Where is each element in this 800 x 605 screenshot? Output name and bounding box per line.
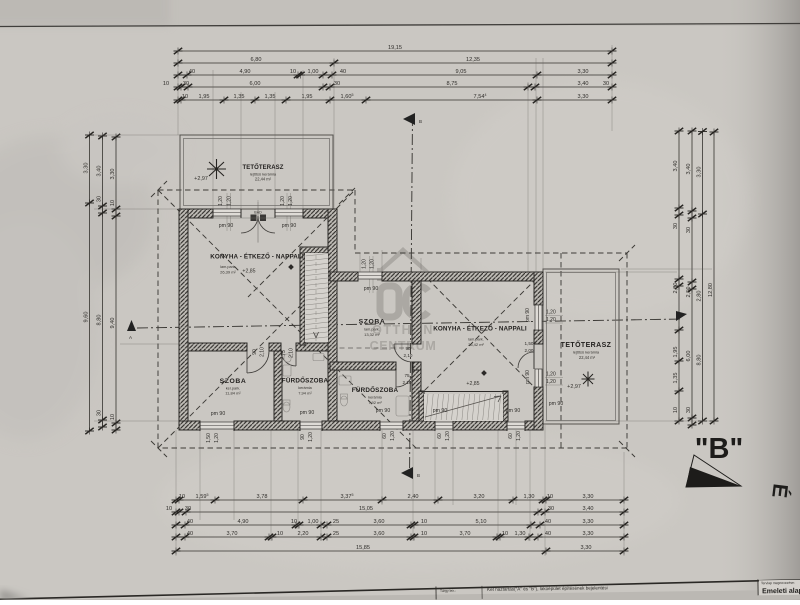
svg-text:60: 60 <box>382 433 388 439</box>
svg-text:+2,97: +2,97 <box>567 384 581 390</box>
svg-text:pm 90: pm 90 <box>219 223 234 229</box>
svg-text:40: 40 <box>187 531 193 537</box>
svg-text:26,42 m²: 26,42 m² <box>468 342 484 347</box>
svg-text:40: 40 <box>340 69 346 75</box>
svg-text:pm 90: pm 90 <box>433 408 448 414</box>
svg-text:10: 10 <box>182 94 188 100</box>
svg-text:SZOBA: SZOBA <box>359 319 386 326</box>
svg-text:40: 40 <box>189 69 195 75</box>
svg-text:FÜRDŐSZOBA: FÜRDŐSZOBA <box>352 385 399 394</box>
svg-text:22,44 m²: 22,44 m² <box>255 177 272 182</box>
svg-text:2,00: 2,00 <box>525 348 534 353</box>
svg-text:1,35: 1,35 <box>234 94 245 100</box>
svg-text:TETŐTERASZ: TETŐTERASZ <box>243 164 284 171</box>
svg-text:30: 30 <box>183 81 189 87</box>
svg-text:90: 90 <box>405 346 411 351</box>
svg-text:1,20: 1,20 <box>516 431 522 441</box>
svg-text:3,30: 3,30 <box>84 163 90 174</box>
svg-text:1,30: 1,30 <box>524 494 535 500</box>
svg-text:BÁD: BÁD <box>254 211 262 215</box>
svg-text:7,94 m²: 7,94 m² <box>298 391 312 396</box>
svg-text:2,80: 2,80 <box>673 283 679 294</box>
svg-text:26,39 m²: 26,39 m² <box>220 270 236 275</box>
svg-text:15,05: 15,05 <box>359 506 373 512</box>
svg-text:2,10: 2,10 <box>403 380 412 385</box>
svg-text:1,00: 1,00 <box>308 519 319 525</box>
svg-text:15,85: 15,85 <box>356 545 370 551</box>
svg-text:pm 90: pm 90 <box>525 370 531 384</box>
svg-text:+2,97: +2,97 <box>194 176 208 182</box>
svg-text:2,10: 2,10 <box>260 347 266 357</box>
svg-text:30: 30 <box>185 506 191 512</box>
svg-text:2,80: 2,80 <box>697 291 703 302</box>
svg-text:10: 10 <box>179 494 185 500</box>
svg-text:pm 90: pm 90 <box>364 286 379 292</box>
svg-text:8,80: 8,80 <box>697 355 703 366</box>
svg-text:90: 90 <box>252 349 258 355</box>
svg-text:pm 90: pm 90 <box>525 308 531 322</box>
svg-text:9,60: 9,60 <box>84 312 90 323</box>
svg-text:10: 10 <box>673 407 679 413</box>
svg-text:13,32 m²: 13,32 m² <box>364 332 380 337</box>
svg-text:8,75: 8,75 <box>447 81 458 87</box>
svg-text:3,70: 3,70 <box>227 531 238 537</box>
svg-text:pm 90: pm 90 <box>376 408 391 414</box>
svg-text:3,20: 3,20 <box>474 494 485 500</box>
svg-text:30: 30 <box>97 410 103 416</box>
svg-text:pm 90: pm 90 <box>549 401 564 407</box>
svg-text:1,20: 1,20 <box>308 432 314 442</box>
svg-text:40: 40 <box>545 531 551 537</box>
svg-text:30: 30 <box>673 223 679 229</box>
svg-text:5,10: 5,10 <box>476 519 487 525</box>
svg-text:1,20: 1,20 <box>362 259 368 269</box>
svg-text:+2,85: +2,85 <box>466 381 479 387</box>
svg-text:1,35: 1,35 <box>673 373 679 384</box>
svg-text:1,20: 1,20 <box>390 431 396 441</box>
svg-text:30: 30 <box>548 506 554 512</box>
svg-text:Emeleti alaprajz "B" ép: Emeleti alaprajz "B" ép <box>762 587 800 595</box>
svg-text:3,30: 3,30 <box>583 519 594 525</box>
svg-text:SZOBA: SZOBA <box>220 378 247 385</box>
svg-text:lam.park.: lam.park. <box>220 265 236 269</box>
svg-text:10: 10 <box>290 69 296 75</box>
svg-text:60: 60 <box>437 433 443 439</box>
svg-text:3,78: 3,78 <box>257 494 268 500</box>
svg-text:1,20: 1,20 <box>546 372 556 378</box>
svg-text:3,30: 3,30 <box>578 69 589 75</box>
svg-text:1,20: 1,20 <box>214 433 220 443</box>
svg-text:10: 10 <box>110 414 116 420</box>
svg-text:10: 10 <box>421 519 427 525</box>
svg-text:9,05: 9,05 <box>456 69 467 75</box>
svg-text:1,20: 1,20 <box>546 317 556 323</box>
svg-text:10: 10 <box>421 531 427 537</box>
svg-text:B: B <box>419 119 422 124</box>
svg-text:1,20: 1,20 <box>546 310 556 316</box>
svg-text:7,92 m²: 7,92 m² <box>368 400 382 405</box>
svg-text:lam.park.: lam.park. <box>468 338 484 342</box>
svg-text:KONYHA - ÉTKEZŐ - NAPPALI: KONYHA - ÉTKEZŐ - NAPPALI <box>210 252 304 261</box>
svg-text:1,50: 1,50 <box>525 341 534 346</box>
svg-text:22,44 m²: 22,44 m² <box>579 355 596 360</box>
svg-text:12,35: 12,35 <box>466 57 480 63</box>
svg-text:9,40: 9,40 <box>110 318 116 329</box>
svg-text:4,90: 4,90 <box>238 519 249 525</box>
svg-text:75: 75 <box>281 350 287 356</box>
svg-text:2,10: 2,10 <box>289 348 295 358</box>
svg-text:A: A <box>129 335 132 340</box>
svg-text:pm 90: pm 90 <box>506 408 521 414</box>
svg-text:CENTRUM: CENTRUM <box>370 339 437 353</box>
svg-text:3,40: 3,40 <box>578 81 589 87</box>
svg-text:Tervlap megnevezése:: Tervlap megnevezése: <box>761 581 795 585</box>
svg-text:3,30: 3,30 <box>697 167 703 178</box>
svg-text:1,20: 1,20 <box>227 196 233 206</box>
svg-text:6,00: 6,00 <box>686 351 692 362</box>
svg-text:B: B <box>417 473 420 478</box>
svg-text:3,30: 3,30 <box>583 531 594 537</box>
svg-text:10: 10 <box>291 519 297 525</box>
svg-text:25: 25 <box>333 519 339 525</box>
svg-text:lam.park.: lam.park. <box>364 328 380 332</box>
svg-text:90: 90 <box>300 434 306 440</box>
svg-text:10: 10 <box>110 200 116 206</box>
svg-text:+2,85: +2,85 <box>242 269 255 275</box>
svg-text:30: 30 <box>334 81 340 87</box>
svg-text:75: 75 <box>404 373 410 378</box>
svg-text:8,80: 8,80 <box>97 315 103 326</box>
svg-text:1,95: 1,95 <box>199 94 210 100</box>
svg-text:1,30: 1,30 <box>515 531 526 537</box>
svg-text:1,20: 1,20 <box>280 196 286 206</box>
svg-text:3,40: 3,40 <box>686 164 692 175</box>
svg-text:3,40: 3,40 <box>583 506 594 512</box>
svg-text:4,90: 4,90 <box>240 69 251 75</box>
svg-text:3,60: 3,60 <box>374 519 385 525</box>
svg-text:3,40: 3,40 <box>673 161 679 172</box>
svg-text:lejtősü kerámia: lejtősü kerámia <box>573 350 600 355</box>
svg-text:30: 30 <box>97 196 103 202</box>
svg-text:30: 30 <box>686 227 692 233</box>
svg-text:6,80: 6,80 <box>251 57 262 63</box>
svg-text:3,70: 3,70 <box>460 531 471 537</box>
svg-text:12,80: 12,80 <box>708 283 714 297</box>
svg-text:FÜRDŐSZOBA: FÜRDŐSZOBA <box>282 376 329 385</box>
svg-text:pm 90: pm 90 <box>211 411 226 417</box>
svg-text:kerámia: kerámia <box>298 386 312 390</box>
svg-text:É: É <box>767 482 792 499</box>
svg-text:30: 30 <box>603 81 609 87</box>
svg-text:1,00: 1,00 <box>308 69 319 75</box>
svg-text:3,60: 3,60 <box>374 531 385 537</box>
svg-text:3,30: 3,30 <box>581 545 592 551</box>
svg-text:3,30: 3,30 <box>110 169 116 180</box>
svg-text:3,30: 3,30 <box>583 494 594 500</box>
svg-text:10: 10 <box>502 531 508 537</box>
svg-text:10: 10 <box>166 506 172 512</box>
svg-text:3,40: 3,40 <box>97 166 103 177</box>
svg-text:KONYHA - ÉTKEZŐ - NAPPALI: KONYHA - ÉTKEZŐ - NAPPALI <box>433 324 527 333</box>
svg-text:25: 25 <box>333 531 339 537</box>
svg-text:10: 10 <box>547 494 553 500</box>
svg-text:1,35: 1,35 <box>265 94 276 100</box>
svg-text:40: 40 <box>187 519 193 525</box>
svg-text:2,10: 2,10 <box>404 353 413 358</box>
svg-text:6,00: 6,00 <box>250 81 261 87</box>
svg-text:1,20: 1,20 <box>445 431 451 441</box>
svg-text:1,50: 1,50 <box>206 433 212 443</box>
svg-text:kerámia: kerámia <box>368 396 382 400</box>
svg-text:2,50: 2,50 <box>686 287 692 298</box>
svg-text:60: 60 <box>508 433 514 439</box>
svg-text:pm 90: pm 90 <box>300 410 315 416</box>
svg-text:10: 10 <box>277 531 283 537</box>
svg-text:1,20: 1,20 <box>288 196 294 206</box>
svg-text:Tárgy leir.:: Tárgy leir.: <box>440 589 456 593</box>
svg-text:1,20: 1,20 <box>218 196 224 206</box>
svg-text:30: 30 <box>686 407 692 413</box>
svg-text:40: 40 <box>545 519 551 525</box>
svg-text:1,20: 1,20 <box>546 379 556 385</box>
svg-text:19,15: 19,15 <box>388 45 402 51</box>
svg-text:10: 10 <box>163 81 169 87</box>
svg-text:1,95: 1,95 <box>673 347 679 358</box>
svg-text:1,20: 1,20 <box>370 259 376 269</box>
svg-text:2,20: 2,20 <box>298 531 309 537</box>
svg-text:3,30: 3,30 <box>578 94 589 100</box>
svg-text:11,84 m²: 11,84 m² <box>225 391 241 396</box>
svg-text:pm 90: pm 90 <box>282 223 297 229</box>
svg-text:TETŐTERASZ: TETŐTERASZ <box>561 340 612 349</box>
